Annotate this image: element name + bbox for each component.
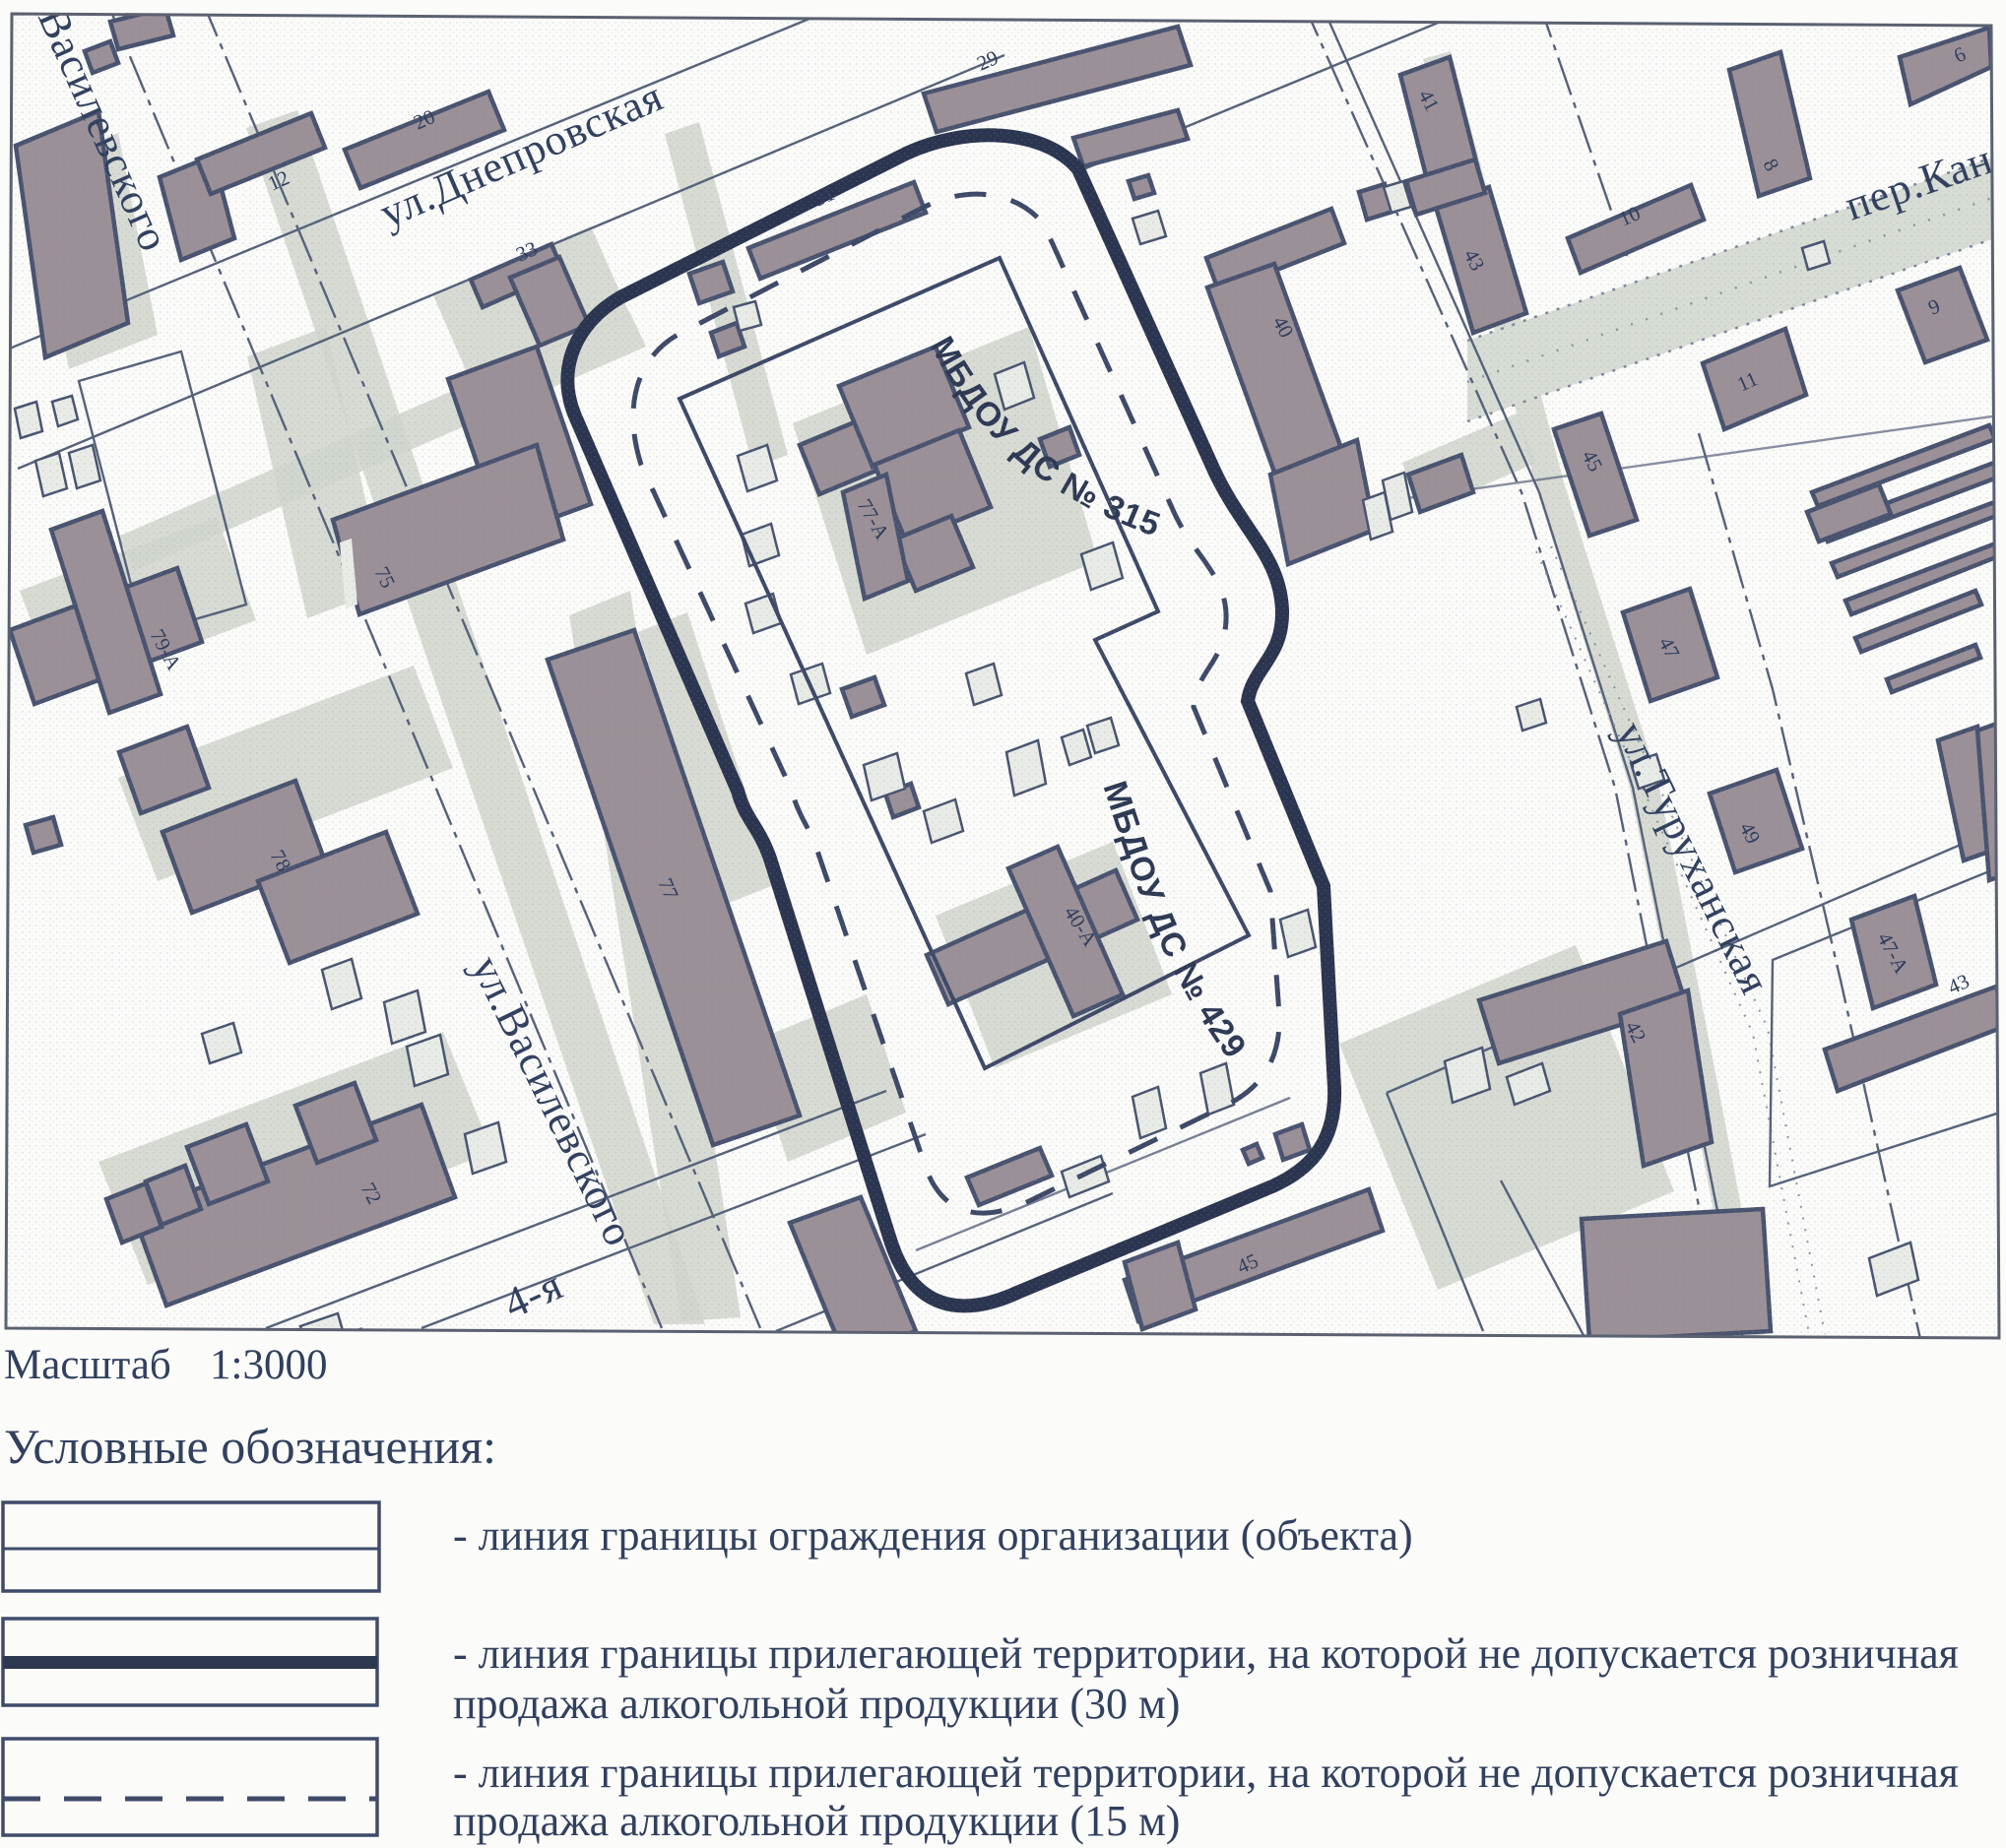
svg-text:Масштаб: Масштаб (4, 1342, 171, 1388)
svg-text:- линия границы прилегающей те: - линия границы прилегающей территории, … (453, 1629, 1959, 1678)
svg-text:- линия границы прилегающей те: - линия границы прилегающей территории, … (453, 1749, 1959, 1797)
svg-text:продажа алкогольной продукции: продажа алкогольной продукции (15 м) (453, 1797, 1180, 1845)
svg-text:- линия границы ограждения орг: - линия границы ограждения организации (… (453, 1511, 1413, 1560)
svg-text:1:3000: 1:3000 (210, 1342, 327, 1388)
svg-text:продажа алкогольной продукции: продажа алкогольной продукции (30 м) (453, 1680, 1180, 1728)
svg-text:Условные обозначения:: Условные обозначения: (4, 1419, 496, 1474)
